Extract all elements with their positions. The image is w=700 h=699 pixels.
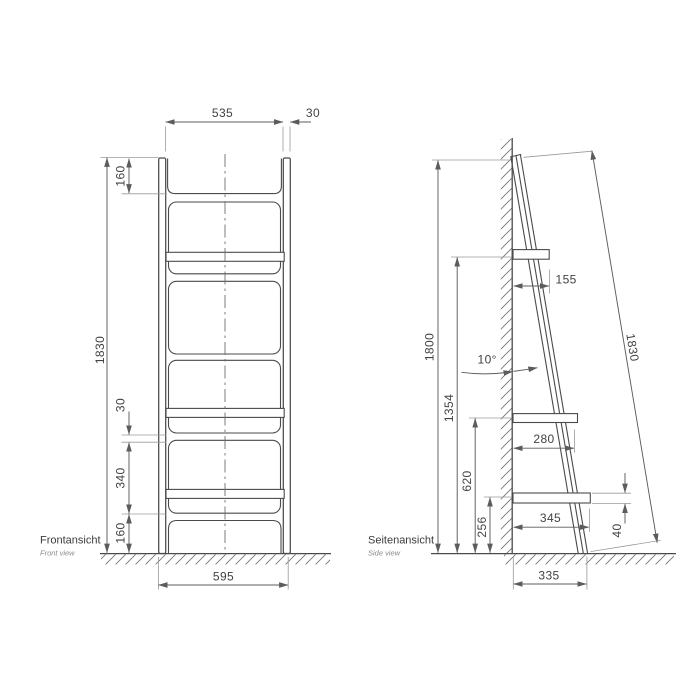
side-dim-bottom-shelf-depth-text: 345: [540, 511, 561, 525]
front-dim-top-section-text: 160: [114, 165, 128, 186]
side-view-label: Seitenansicht: [368, 535, 434, 547]
front-ground-hatch: [101, 554, 330, 564]
side-dim-mid-shelf-height-text: 620: [460, 470, 474, 491]
front-dim-inner-width-text: 535: [212, 106, 233, 120]
side-dim-base-depth-text: 335: [538, 569, 559, 583]
side-dim-bottom-shelf-height-text: 256: [475, 516, 489, 537]
side-view-sublabel: Side view: [368, 549, 401, 558]
front-dim-shelf-thickness-text: 30: [114, 398, 128, 412]
side-dim-tilt-angle: 10°: [462, 353, 538, 374]
front-dim-profile-width: 30: [290, 106, 320, 122]
side-wall-hatch: [501, 139, 512, 553]
front-dim-shelf-spacing-text: 340: [114, 467, 128, 488]
side-dim-mid-shelf-depth-text: 280: [533, 432, 554, 446]
front-dim-inner-width: 535: [166, 106, 290, 152]
front-view-drawing: [100, 154, 331, 564]
front-dim-profile-width-text: 30: [306, 106, 320, 120]
front-left-upright: [159, 158, 166, 554]
side-dim-top-shelf-depth-text: 155: [556, 273, 577, 287]
front-panel-2: [169, 281, 281, 354]
side-dim-top-shelf-depth: 155: [514, 270, 577, 294]
side-shelf-top: [513, 250, 549, 260]
side-dim-shelf-thickness-text: 40: [610, 523, 624, 537]
front-dim-bottom-section: 160: [114, 514, 130, 552]
front-panel-1: [169, 202, 281, 274]
side-dim-tilt-angle-text: 10°: [478, 353, 497, 367]
technical-drawing-page: 535 30 1830 160 30 340 160 595: [0, 0, 700, 699]
side-dim-height-text: 1800: [423, 333, 437, 361]
side-shelf-bottom: [513, 493, 590, 503]
front-dim-outer-width-text: 595: [213, 570, 234, 584]
side-dim-top-shelf-height-text: 1354: [442, 394, 456, 422]
front-panel-3: [169, 360, 281, 433]
side-ground-hatch: [504, 554, 674, 564]
front-panel-4: [169, 440, 281, 513]
side-dim-shelf-thickness: 40: [592, 473, 631, 538]
front-dim-bottom-section-text: 160: [114, 522, 128, 543]
front-dim-height: 1830: [93, 157, 159, 552]
side-shelf-mid: [513, 414, 578, 423]
front-view-sublabel: Front view: [40, 549, 75, 558]
front-top-rail: [168, 159, 282, 194]
front-dim-height-text: 1830: [93, 336, 107, 364]
side-dim-height: 1800: [423, 160, 511, 553]
drawing-svg: 535 30 1830 160 30 340 160 595: [0, 0, 700, 699]
front-view-label: Frontansicht: [40, 535, 101, 547]
